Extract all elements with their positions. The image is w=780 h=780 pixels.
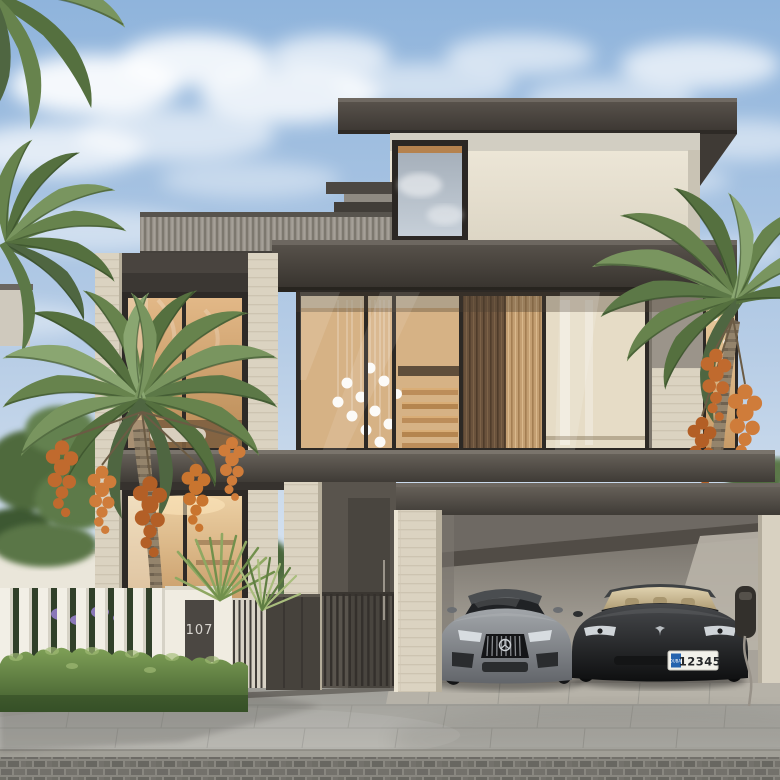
license-plate: DUBAI 12345 (668, 651, 721, 670)
upper-window (392, 140, 468, 240)
gate-leaf (266, 594, 320, 690)
wood-slat-panel-dark (462, 292, 506, 454)
upper-floor (338, 98, 737, 240)
house-number: 107 (186, 623, 214, 638)
plate-number: 12345 (679, 655, 722, 669)
villa-rendering: DUBAI 12345 (0, 0, 780, 780)
wood-slat-panel-light (506, 292, 542, 454)
top-roof (338, 98, 737, 134)
carport-pillar (394, 510, 442, 692)
rendering-canvas: DUBAI 12345 (0, 0, 780, 780)
car-body (572, 604, 748, 682)
house-number-plaque: 107 (185, 600, 214, 662)
